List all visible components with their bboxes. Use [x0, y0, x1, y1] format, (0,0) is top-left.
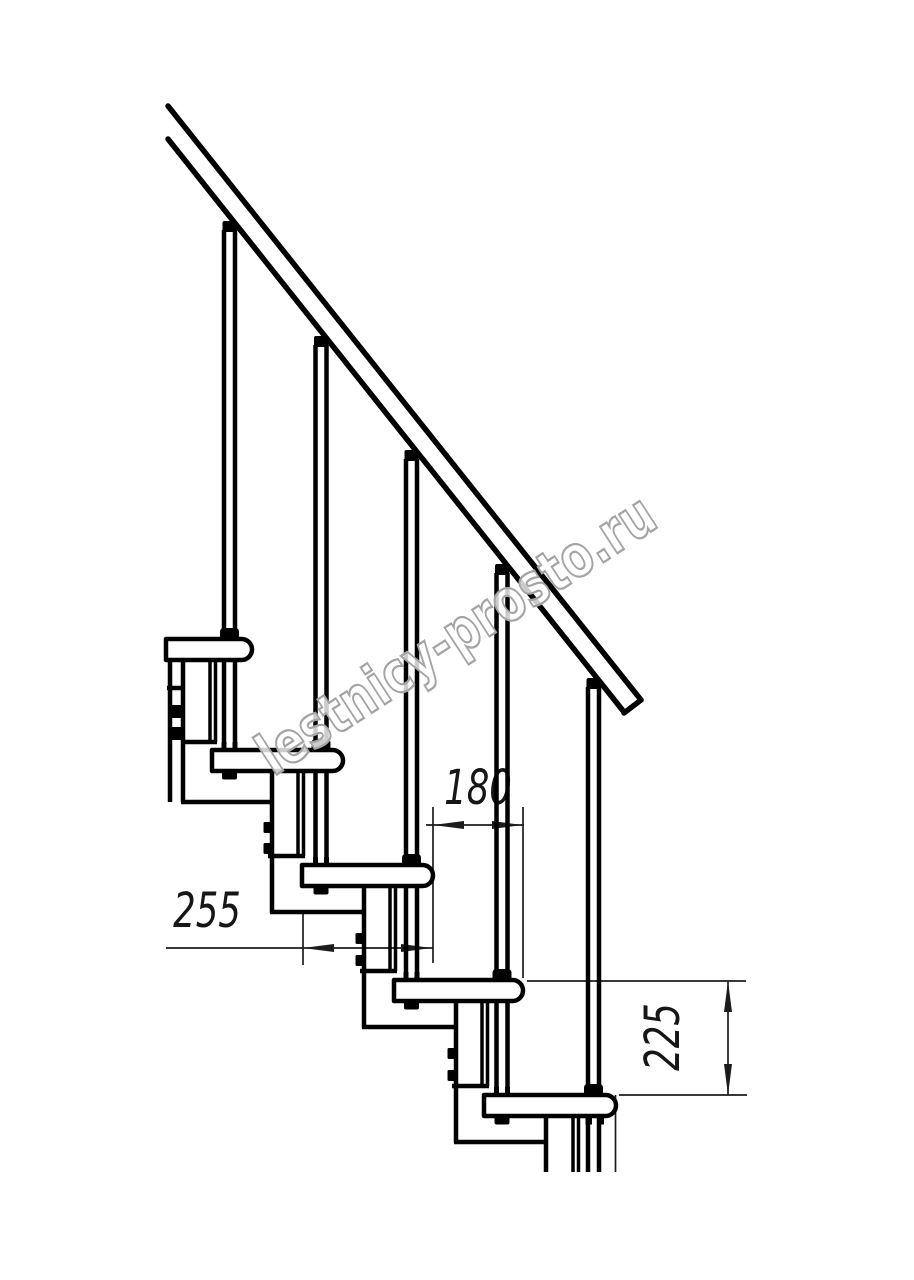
baluster-base-cap-icon: [584, 1084, 603, 1096]
rod-flange-icon: [494, 1087, 499, 1096]
dimension-label-riser-height: 225: [635, 1003, 691, 1071]
arrowhead-left-icon: [433, 821, 464, 829]
bolt-icon: [168, 705, 182, 718]
rod-flange-icon: [505, 1087, 510, 1096]
handrail-end-cap: [624, 700, 641, 713]
baluster-base-cap-icon: [220, 628, 239, 640]
baluster-2: [314, 336, 328, 865]
rod-flange-icon: [586, 1116, 593, 1125]
bolt-icon: [356, 955, 365, 966]
baluster-base-cap-icon: [493, 969, 512, 981]
baluster-base-cap-icon: [402, 854, 421, 866]
rod-flange-icon: [415, 972, 420, 981]
rod-nut-icon: [222, 770, 237, 780]
tread-5: [484, 1095, 616, 1116]
bolt-icon: [448, 1070, 457, 1081]
dimension-tread-depth: 255: [166, 883, 433, 965]
tread-1: [166, 639, 252, 660]
baluster-1: [223, 221, 237, 750]
rod-flange-icon: [404, 972, 409, 981]
watermark: lestnicy-prosto.ru: [245, 481, 669, 789]
staircase-technical-drawing: 255 180 225: [0, 0, 914, 1280]
rod-flange-icon: [222, 742, 227, 751]
bolt-icon: [356, 933, 365, 944]
rod-flange-icon: [313, 857, 318, 866]
drawing-canvas: 255 180 225: [0, 0, 914, 1280]
step-module-5: [546, 1116, 579, 1172]
dimension-label-step-run: 180: [444, 760, 512, 816]
arrowhead-left-icon: [303, 944, 334, 952]
rod-flange-icon: [598, 1116, 605, 1125]
arrowhead-down-icon: [724, 1064, 732, 1095]
rod-nut-icon: [404, 1000, 419, 1010]
rod-nut-icon: [314, 885, 329, 895]
dimension-riser-height: 225: [527, 981, 747, 1172]
rod-flange-icon: [324, 857, 329, 866]
bolt-icon: [448, 1048, 457, 1059]
bolt-icon: [264, 822, 273, 833]
tread-4: [394, 980, 523, 1001]
bolt-icon: [168, 727, 182, 740]
arrowhead-up-icon: [724, 981, 732, 1012]
dimension-label-tread-depth: 255: [173, 883, 241, 939]
rod-nut-icon: [495, 1115, 510, 1125]
tread-3: [302, 865, 433, 886]
rod-flange-icon: [233, 742, 238, 751]
baluster-3: [405, 450, 419, 980]
bolt-icon: [264, 843, 273, 854]
